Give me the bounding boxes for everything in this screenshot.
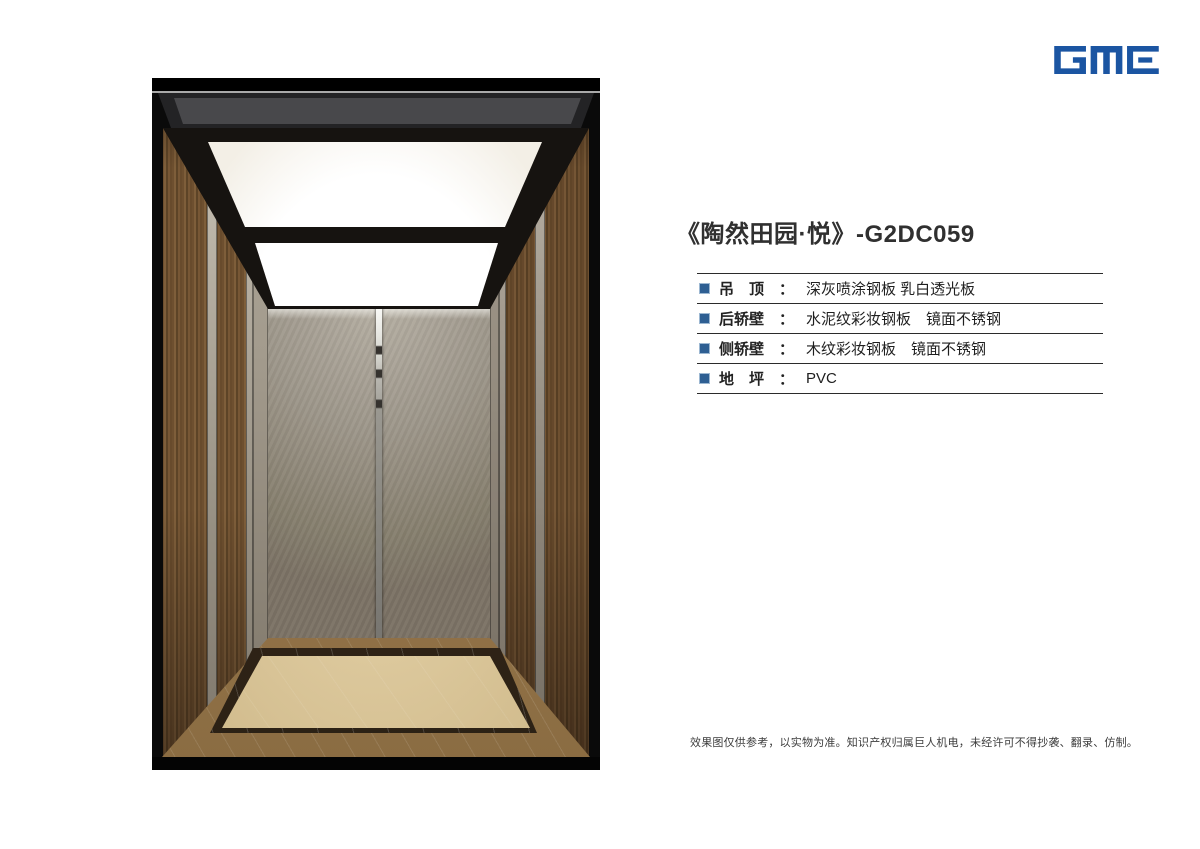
spec-colon: ： <box>779 308 795 329</box>
rear-wall-center-steel-strip <box>376 305 382 640</box>
cab-top-black-bar <box>152 78 600 91</box>
cab-top-hairline <box>152 91 600 93</box>
spec-value: PVC <box>806 370 837 387</box>
spec-value: 木纹彩妆钢板 镜面不锈钢 <box>806 338 986 359</box>
spec-row-rear-wall: 后轿壁 ： 水泥纹彩妆钢板 镜面不锈钢 <box>697 304 1103 334</box>
cab-rear-cement-wall <box>268 305 490 640</box>
bullet-square-icon <box>699 313 710 324</box>
gme-logo <box>1050 46 1163 74</box>
spec-row-side-wall: 侧轿壁 ： 木纹彩妆钢板 镜面不锈钢 <box>697 334 1103 364</box>
elevator-cab-rendering <box>152 78 600 770</box>
product-title: 《陶然田园·悦》-G2DC059 <box>676 214 975 249</box>
spec-value: 深灰喷涂钢板 乳白透光板 <box>806 278 975 299</box>
bullet-square-icon <box>699 283 710 294</box>
bullet-square-icon <box>699 373 710 384</box>
bullet-square-icon <box>699 343 710 354</box>
spec-row-ceiling: 吊 顶 ： 深灰喷涂钢板 乳白透光板 <box>697 274 1103 304</box>
spec-table: 吊 顶 ： 深灰喷涂钢板 乳白透光板 后轿壁 ： 水泥纹彩妆钢板 镜面不锈钢 侧… <box>697 273 1103 394</box>
spec-label: 侧轿壁 <box>719 338 779 359</box>
gme-logo-icon <box>1050 46 1163 74</box>
spec-label: 吊 顶 <box>719 278 779 299</box>
spec-colon: ： <box>779 368 795 389</box>
spec-row-floor: 地 坪 ： PVC <box>697 364 1103 394</box>
spec-value: 水泥纹彩妆钢板 镜面不锈钢 <box>806 308 1001 329</box>
spec-label: 地 坪 <box>719 368 779 389</box>
spec-colon: ： <box>779 338 795 359</box>
spec-colon: ： <box>779 278 795 299</box>
spec-label: 后轿壁 <box>719 308 779 329</box>
cab-bottom-black-bar <box>152 757 600 770</box>
disclaimer-text: 效果图仅供参考，以实物为准。知识产权归属巨人机电，未经许可不得抄袭、翻录、仿制。 <box>690 734 1120 750</box>
